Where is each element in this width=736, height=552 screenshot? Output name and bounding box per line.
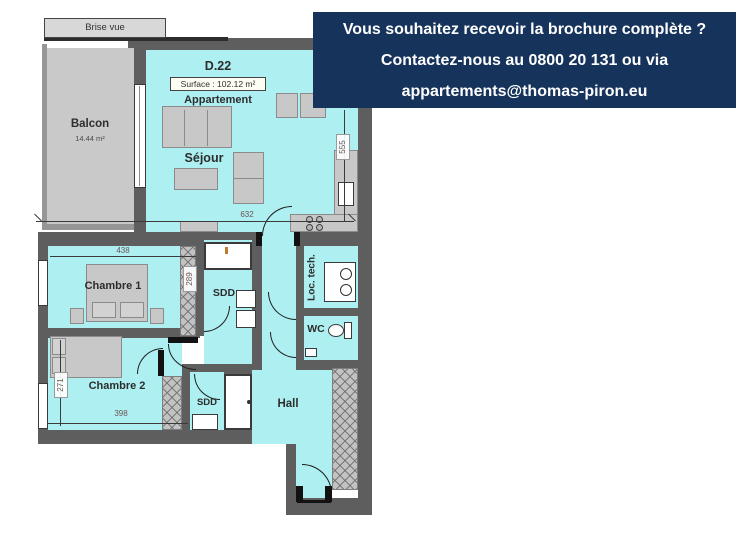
stove-burner bbox=[306, 224, 313, 231]
kitchen-column bbox=[276, 93, 298, 118]
dimension-bedroom2-width: 398 bbox=[108, 408, 134, 420]
stove-burner bbox=[316, 224, 323, 231]
door-leaf bbox=[168, 337, 198, 343]
dimension-line bbox=[344, 110, 345, 221]
door-handle bbox=[247, 400, 251, 404]
door-jamb bbox=[256, 232, 262, 246]
closet-hall bbox=[332, 368, 358, 490]
washbasin bbox=[236, 310, 256, 328]
shower bbox=[204, 242, 252, 270]
room-label-tech: Loc. tech. bbox=[307, 253, 318, 303]
wall bbox=[196, 246, 204, 336]
unit-type: Appartement bbox=[178, 94, 258, 106]
wall bbox=[304, 308, 358, 316]
promo-line-1: Vous souhaitez recevoir la brochure comp… bbox=[313, 14, 736, 45]
dimension-bedroom1-depth: 289 bbox=[183, 266, 197, 292]
floor-plan-page: 632 438 398 555 289 271 Brise vue D.22 S… bbox=[0, 0, 736, 552]
wall bbox=[296, 240, 304, 370]
shower-head bbox=[225, 247, 228, 254]
unit-id: D.22 bbox=[188, 60, 248, 74]
toilet-tank bbox=[344, 322, 352, 339]
wall bbox=[358, 50, 372, 515]
unit-surface: Surface : 102.12 m² bbox=[170, 77, 266, 91]
brise-vue-label: Brise vue bbox=[45, 22, 165, 33]
wall bbox=[182, 370, 190, 430]
nightstand bbox=[150, 308, 164, 324]
washer-drum bbox=[340, 268, 352, 280]
room-label-shower-top: SDD bbox=[208, 288, 240, 300]
balcony-railing bbox=[42, 224, 134, 230]
room-label-living: Séjour bbox=[176, 152, 232, 166]
window-bedroom1 bbox=[38, 260, 48, 306]
washer-drum bbox=[340, 284, 352, 296]
dimension-living-width: 632 bbox=[234, 209, 260, 221]
room-area-balcony: 14.44 m² bbox=[66, 134, 114, 143]
promo-line-2: Contactez-nous au 0800 20 131 ou via bbox=[313, 45, 736, 76]
toilet bbox=[328, 324, 344, 337]
radiator bbox=[305, 348, 317, 357]
sofa-small bbox=[234, 178, 263, 179]
room-label-shower-bottom: SDD bbox=[192, 398, 222, 408]
closet-bedroom2 bbox=[162, 376, 182, 430]
entry-threshold bbox=[297, 500, 331, 503]
washer-dryer bbox=[324, 262, 356, 302]
window-bedroom2 bbox=[38, 383, 48, 429]
pillow bbox=[92, 302, 116, 318]
dimension-line bbox=[36, 221, 354, 222]
nightstand bbox=[70, 308, 84, 324]
coffee-table bbox=[174, 168, 218, 190]
room-label-hall: Hall bbox=[268, 398, 308, 411]
sofa-large bbox=[162, 106, 232, 148]
sliding-door-balcony bbox=[134, 84, 146, 188]
door-jamb bbox=[294, 232, 300, 246]
sliding-door-balcony bbox=[139, 86, 140, 186]
pillow bbox=[52, 338, 66, 355]
dimension-living-depth: 555 bbox=[336, 134, 350, 160]
tv-unit bbox=[180, 221, 218, 232]
washbasin bbox=[192, 414, 218, 430]
pillow bbox=[120, 302, 144, 318]
kitchen-counter bbox=[290, 214, 358, 232]
dimension-bedroom2-depth: 271 bbox=[54, 372, 68, 398]
sofa-large bbox=[207, 110, 208, 146]
wall bbox=[38, 430, 262, 444]
room-label-bedroom1: Chambre 1 bbox=[78, 280, 148, 292]
room-label-wc: WC bbox=[304, 324, 328, 336]
sofa-large bbox=[184, 110, 185, 146]
dimension-bedroom1-width: 438 bbox=[110, 245, 136, 257]
room-label-balcony: Balcon bbox=[64, 118, 116, 131]
door-leaf bbox=[158, 350, 164, 376]
brise-vue-bar: Brise vue bbox=[44, 18, 166, 38]
promo-banner: Vous souhaitez recevoir la brochure comp… bbox=[313, 12, 736, 108]
kitchen-sink bbox=[338, 182, 354, 206]
dimension-line bbox=[48, 423, 188, 424]
room-label-bedroom2: Chambre 2 bbox=[82, 380, 152, 392]
promo-line-3: appartements@thomas-piron.eu bbox=[313, 76, 736, 107]
